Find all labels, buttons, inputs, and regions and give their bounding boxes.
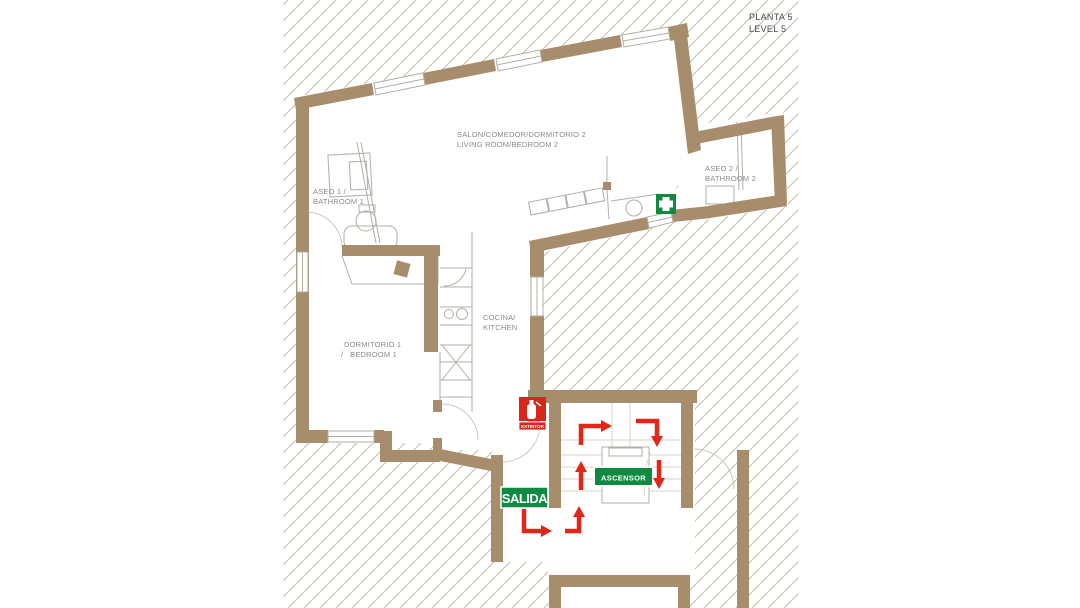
aseo1-label: ASEO 1 / bbox=[313, 187, 347, 196]
exit-sign-label: SALIDA bbox=[502, 491, 549, 506]
aseo2-label: BATHROOM 2 bbox=[705, 174, 756, 183]
extinguisher-label: EXTINTOR bbox=[521, 424, 544, 429]
salon-label: SALON/COMEDOR/DORMITORIO 2 bbox=[457, 130, 586, 139]
cocina-label: COCINA/ bbox=[483, 313, 516, 322]
salon-label: LIVING ROOM/BEDROOM 2 bbox=[457, 140, 558, 149]
cocina-label: KITCHEN bbox=[483, 323, 517, 332]
elevator-sign: ASCENSOR bbox=[594, 467, 653, 486]
evacuation-floor-plan: SALON/COMEDOR/DORMITORIO 2 LIVING ROOM/B… bbox=[0, 0, 1080, 608]
wall-right-lower bbox=[737, 450, 749, 608]
aseo2-label: ASEO 2 / bbox=[705, 164, 739, 173]
plan-title-line1: PLANTA 5 bbox=[749, 12, 793, 22]
plan-title-line2: LEVEL 5 bbox=[749, 24, 786, 34]
fire-extinguisher-icon: EXTINTOR bbox=[519, 397, 546, 430]
elevator-sign-label: ASCENSOR bbox=[601, 474, 646, 483]
exit-sign: SALIDA bbox=[501, 487, 548, 508]
aseo1-label: BATHROOM 1 bbox=[313, 197, 364, 206]
first-aid-icon bbox=[656, 194, 676, 214]
floor-plan-svg: SALON/COMEDOR/DORMITORIO 2 LIVING ROOM/B… bbox=[0, 0, 1080, 608]
dormitorio1-label: / BEDROOM 1 bbox=[341, 350, 397, 359]
dormitorio1-label: DORMITORIO 1 bbox=[344, 340, 401, 349]
